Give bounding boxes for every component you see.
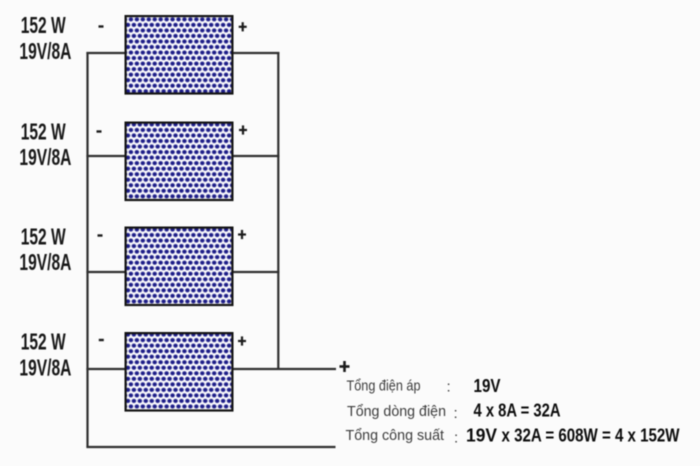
svg-text:19V: 19V — [474, 376, 501, 396]
svg-text::: : — [454, 405, 458, 422]
svg-text:152 W: 152 W — [21, 329, 66, 355]
svg-text:Tổng dòng điện: Tổng dòng điện — [347, 403, 446, 420]
svg-text::: : — [447, 379, 451, 396]
svg-text::: : — [454, 430, 458, 447]
svg-text:19V/8A: 19V/8A — [19, 249, 71, 275]
svg-text:19V/8A: 19V/8A — [19, 38, 71, 64]
svg-text:19V/8A: 19V/8A — [19, 144, 71, 170]
svg-text:152 W: 152 W — [21, 223, 66, 249]
svg-text:152 W: 152 W — [21, 118, 66, 144]
svg-text:19V: 19V — [466, 426, 497, 446]
svg-text:4 x 8A = 32A: 4 x 8A = 32A — [474, 401, 561, 421]
svg-text:x 32A = 608W = 4 x 152W: x 32A = 608W = 4 x 152W — [502, 426, 680, 446]
svg-text:Tổng điện áp: Tổng điện áp — [347, 378, 421, 395]
svg-text:19V/8A: 19V/8A — [19, 354, 71, 380]
svg-text:Tổng công suất: Tổng công suất — [346, 427, 445, 444]
svg-text:152 W: 152 W — [21, 12, 66, 38]
